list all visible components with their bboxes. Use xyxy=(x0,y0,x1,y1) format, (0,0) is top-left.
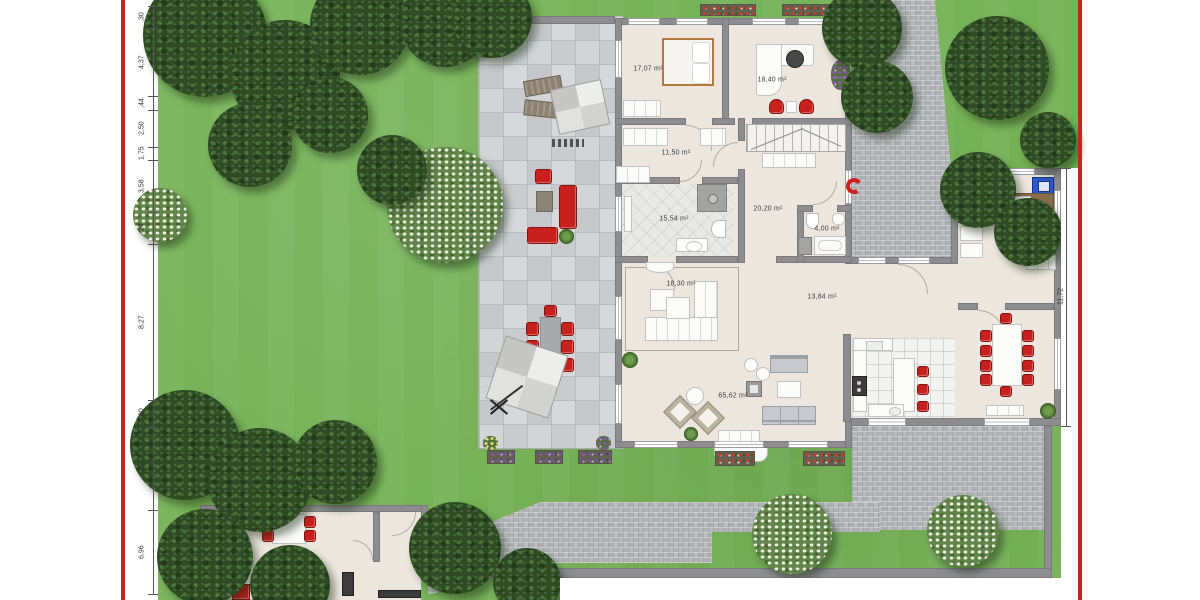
ruler-label: 4,37 xyxy=(137,42,147,82)
sideboard xyxy=(718,430,760,442)
window xyxy=(868,418,906,426)
window xyxy=(615,40,622,78)
ruler-label: ,24 xyxy=(137,208,147,248)
wall xyxy=(1005,303,1054,310)
ruler-label: ,30 xyxy=(137,393,147,433)
potted-plant xyxy=(559,229,574,244)
office-chair xyxy=(786,50,804,68)
tree xyxy=(409,502,501,594)
wall xyxy=(776,256,852,263)
flower-pot xyxy=(596,436,611,450)
left-ruler: ,30 4,37 ,44 2,50 1,75 3,58 ,24 8,27 ,30… xyxy=(0,0,160,600)
dining-chair xyxy=(980,330,992,342)
flower-planter xyxy=(700,4,756,16)
dining-table xyxy=(992,324,1022,386)
staircase xyxy=(746,124,846,152)
terrace-door xyxy=(714,441,764,448)
tv-cabinet xyxy=(342,572,354,596)
bed xyxy=(662,38,714,86)
room-label-bathroom: 15,54 m² xyxy=(659,216,688,223)
ruler-label: 3,58 xyxy=(137,166,147,206)
side-table xyxy=(746,381,762,397)
window xyxy=(676,18,708,25)
potted-plant xyxy=(622,352,638,368)
wall xyxy=(722,18,729,125)
window xyxy=(984,418,1030,426)
window xyxy=(752,18,786,25)
annex-window-band xyxy=(378,590,421,598)
parasol-base xyxy=(488,396,510,418)
wall xyxy=(615,256,648,263)
bench xyxy=(960,226,983,241)
flower-planter xyxy=(578,450,612,464)
tree xyxy=(157,509,253,600)
room-label-hall: 20,20 m² xyxy=(753,206,782,213)
tree xyxy=(357,135,427,205)
floor-plan-canvas: 17,07 m² 18,40 m² 11,50 m² 15,54 m² 20,2… xyxy=(0,0,1200,600)
patio-coffee-table xyxy=(536,191,553,212)
window xyxy=(858,257,886,264)
ruler-label: 6,96 xyxy=(137,532,147,572)
flower-planter xyxy=(487,450,515,464)
sofa xyxy=(762,406,816,425)
wall xyxy=(845,418,852,448)
outdoor-chair xyxy=(544,305,557,317)
shower xyxy=(798,237,812,255)
tree xyxy=(208,103,292,187)
bar-stool xyxy=(917,401,929,412)
outdoor-chair xyxy=(561,340,574,354)
shower xyxy=(697,184,727,212)
room-label-sitting-area: 18,30 m² xyxy=(666,281,695,288)
bar-stool xyxy=(917,384,929,395)
tree xyxy=(945,16,1049,120)
coffee-table xyxy=(666,297,690,319)
dining-chair xyxy=(1000,386,1012,397)
desk-return xyxy=(756,44,782,96)
page-border-left xyxy=(121,0,125,600)
tree xyxy=(293,420,377,504)
bar-stool xyxy=(917,366,929,377)
ruler-label: ,23 xyxy=(137,448,147,488)
entry-door xyxy=(898,257,930,264)
wall xyxy=(738,169,745,263)
ruler-label: ,30 xyxy=(137,0,147,37)
wardrobe xyxy=(616,166,650,183)
sideboard xyxy=(986,405,1024,416)
flower-planter xyxy=(715,451,755,466)
flower-pot xyxy=(483,436,498,450)
room-label-bedroom: 17,07 m² xyxy=(633,66,662,73)
kitchen-sink-unit xyxy=(868,404,904,417)
wall xyxy=(702,177,738,184)
annex-chair xyxy=(304,516,316,528)
dining-chair xyxy=(1022,374,1034,386)
visitor-chair xyxy=(769,99,784,114)
coffee-table xyxy=(777,381,801,398)
tree xyxy=(292,77,368,153)
patio-sofa xyxy=(559,185,577,229)
dining-chair xyxy=(980,374,992,386)
wall xyxy=(958,303,978,310)
bush xyxy=(752,494,832,574)
toilet xyxy=(711,220,726,238)
wall xyxy=(712,118,735,125)
patio-armchair xyxy=(535,169,552,184)
wall xyxy=(843,334,851,422)
bench xyxy=(960,243,983,258)
flower-planter xyxy=(535,450,563,464)
page-border-right xyxy=(1078,0,1082,600)
room-label-corridor: 11,50 m² xyxy=(662,150,691,157)
pouf xyxy=(756,367,770,381)
outdoor-chair xyxy=(561,322,574,336)
dining-chair xyxy=(1022,345,1034,357)
room-label-wc: 4,00 m² xyxy=(814,226,839,233)
wash-basin xyxy=(832,213,845,225)
wardrobe xyxy=(700,128,726,146)
bathtub xyxy=(814,236,846,255)
window xyxy=(615,196,622,232)
wall xyxy=(373,512,380,562)
dining-chair xyxy=(1022,330,1034,342)
dining-chair xyxy=(980,345,992,357)
room-label-office: 18,40 m² xyxy=(757,77,786,84)
tree xyxy=(841,61,913,133)
room-label-living-room: 65,62 m² xyxy=(718,393,747,400)
wardrobe xyxy=(623,128,668,146)
room-label-hallway: 13,84 m² xyxy=(807,294,836,301)
wall xyxy=(738,118,745,141)
radiator xyxy=(624,196,632,232)
stove xyxy=(852,376,867,396)
annex-chair xyxy=(304,530,316,542)
window xyxy=(628,18,660,25)
patio-sofa xyxy=(527,227,558,244)
patio-logo-mark xyxy=(552,139,584,147)
window xyxy=(788,441,828,448)
window xyxy=(615,384,622,424)
ruler-label: 8,27 xyxy=(137,302,147,342)
outdoor-chair xyxy=(526,322,539,336)
dining-chair xyxy=(980,360,992,372)
side-table xyxy=(786,101,797,113)
dining-chair xyxy=(1000,313,1012,324)
round-table xyxy=(686,387,704,405)
corner-sofa xyxy=(645,317,718,341)
margin-mask xyxy=(560,578,1078,600)
window xyxy=(634,441,678,448)
dining-chair xyxy=(1022,360,1034,372)
potted-plant xyxy=(684,427,698,441)
wall xyxy=(676,256,738,263)
wall xyxy=(615,118,686,125)
wall xyxy=(837,205,852,212)
flower-planter xyxy=(803,451,845,466)
bush xyxy=(927,495,999,567)
visitor-chair xyxy=(799,99,814,114)
window xyxy=(615,296,622,340)
sofa xyxy=(770,355,808,373)
wall xyxy=(797,205,813,212)
dimension-label: 11,72 xyxy=(1056,277,1066,317)
right-dimension: 11,72 xyxy=(1050,0,1090,600)
wall-niche xyxy=(646,262,674,273)
dresser xyxy=(623,100,661,117)
bathroom-vanity xyxy=(676,238,708,252)
console-cabinet xyxy=(762,153,816,168)
